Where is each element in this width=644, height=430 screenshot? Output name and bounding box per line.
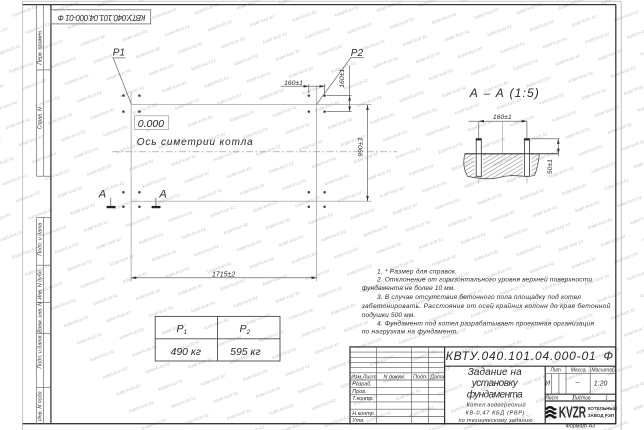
svg-text:Взам. инв. N: Взам. инв. N xyxy=(38,302,44,333)
svg-text:Ф: Ф xyxy=(604,349,614,363)
svg-text:160±1: 160±1 xyxy=(339,69,346,88)
svg-text:–: – xyxy=(574,379,579,386)
svg-text:3. В случае отсутствия бетонно: 3. В случае отсутствия бетонного пола пл… xyxy=(377,293,581,301)
svg-text:А: А xyxy=(98,188,106,200)
svg-text:А – А (1:5): А – А (1:5) xyxy=(469,86,539,100)
svg-text:Разраб.: Разраб. xyxy=(352,382,372,388)
svg-text:Масса: Масса xyxy=(571,368,586,374)
svg-text:Лит: Лит xyxy=(549,368,560,374)
svg-text:990±3: 990±3 xyxy=(357,138,364,157)
svg-text:490 кг: 490 кг xyxy=(171,346,202,358)
svg-text:2. Отклонение от горизонтально: 2. Отклонение от горизонтального уровня … xyxy=(376,276,592,284)
svg-text:50±1: 50±1 xyxy=(547,159,554,174)
svg-text:установку: установку xyxy=(471,378,519,389)
svg-text:КВ-0,47 КБД (РВР): КВ-0,47 КБД (РВР) xyxy=(466,411,525,417)
svg-text:Масштаб: Масштаб xyxy=(591,368,615,374)
svg-text:Лист: Лист xyxy=(544,396,558,402)
svg-text:КВТУ.040.101.04.000-01 Ф: КВТУ.040.101.04.000-01 Ф xyxy=(57,13,146,22)
svg-text:Утв.: Утв. xyxy=(351,418,364,424)
svg-text:Пров.: Пров. xyxy=(352,389,366,395)
svg-text:4. Фундамент под котел разраба: 4. Фундамент под котел разрабатывает про… xyxy=(377,319,594,327)
svg-text:Н.контр.: Н.контр. xyxy=(352,411,375,417)
svg-text:1. * Размер для справок.: 1. * Размер для справок. xyxy=(377,267,457,275)
svg-text:1: 1 xyxy=(605,396,608,402)
svg-text:1:20: 1:20 xyxy=(594,381,608,388)
svg-text:Изм.Лист: Изм.Лист xyxy=(351,374,377,380)
svg-text:KVZR: KVZR xyxy=(559,403,587,421)
svg-text:Т.контр.: Т.контр. xyxy=(352,396,374,402)
svg-text:1715±2: 1715±2 xyxy=(212,271,235,278)
svg-text:КВТУ.040.101.04.000-01: КВТУ.040.101.04.000-01 xyxy=(446,349,596,363)
svg-text:забетонировать. Расстояние от: забетонировать. Расстояние от осей крайн… xyxy=(361,302,611,310)
svg-text:Формат А3: Формат А3 xyxy=(566,424,596,430)
svg-text:Инв. N подл.: Инв. N подл. xyxy=(38,390,44,421)
svg-text:Р1: Р1 xyxy=(113,47,125,58)
svg-text:Задание на: Задание на xyxy=(468,367,522,378)
svg-text:0.000: 0.000 xyxy=(138,118,164,130)
svg-text:Ось симетрии котла: Ось симетрии котла xyxy=(137,137,253,148)
svg-text:Инв. N дубл.: Инв. N дубл. xyxy=(38,269,44,300)
svg-text:Листов: Листов xyxy=(571,396,591,402)
svg-text:Справ. N: Справ. N xyxy=(38,107,44,129)
svg-text:N докум.: N докум. xyxy=(383,374,405,380)
svg-text:160±1: 160±1 xyxy=(493,114,512,121)
svg-text:подушки 500 мм.: подушки 500 мм. xyxy=(362,311,416,319)
svg-text:по техническому заданию: по техническому заданию xyxy=(459,418,533,424)
svg-text:Подп. и дата: Подп. и дата xyxy=(38,335,44,368)
svg-text:фундамента: фундамента xyxy=(467,388,523,400)
svg-text:КОТЕЛЬНЫЙ: КОТЕЛЬНЫЙ xyxy=(588,404,617,411)
svg-text:Р2: Р2 xyxy=(351,48,364,59)
svg-text:А: А xyxy=(158,188,166,200)
svg-text:595 кг: 595 кг xyxy=(230,346,261,358)
svg-text:фундамента не более 10 мм.: фундамента не более 10 мм. xyxy=(362,284,456,292)
svg-text:160±1: 160±1 xyxy=(284,80,303,87)
svg-text:Подп. и дата: Подп. и дата xyxy=(38,223,44,256)
svg-text:ЗАВОД РЭП: ЗАВОД РЭП xyxy=(588,413,615,418)
svg-text:Дата: Дата xyxy=(429,374,444,380)
svg-text:Котел водогрейный: Котел водогрейный xyxy=(467,401,526,408)
svg-text:по нагрузкам на фундамент.: по нагрузкам на фундамент. xyxy=(362,328,459,336)
svg-text:Подп.: Подп. xyxy=(413,374,427,380)
svg-text:Перв. примен.: Перв. примен. xyxy=(38,30,44,65)
